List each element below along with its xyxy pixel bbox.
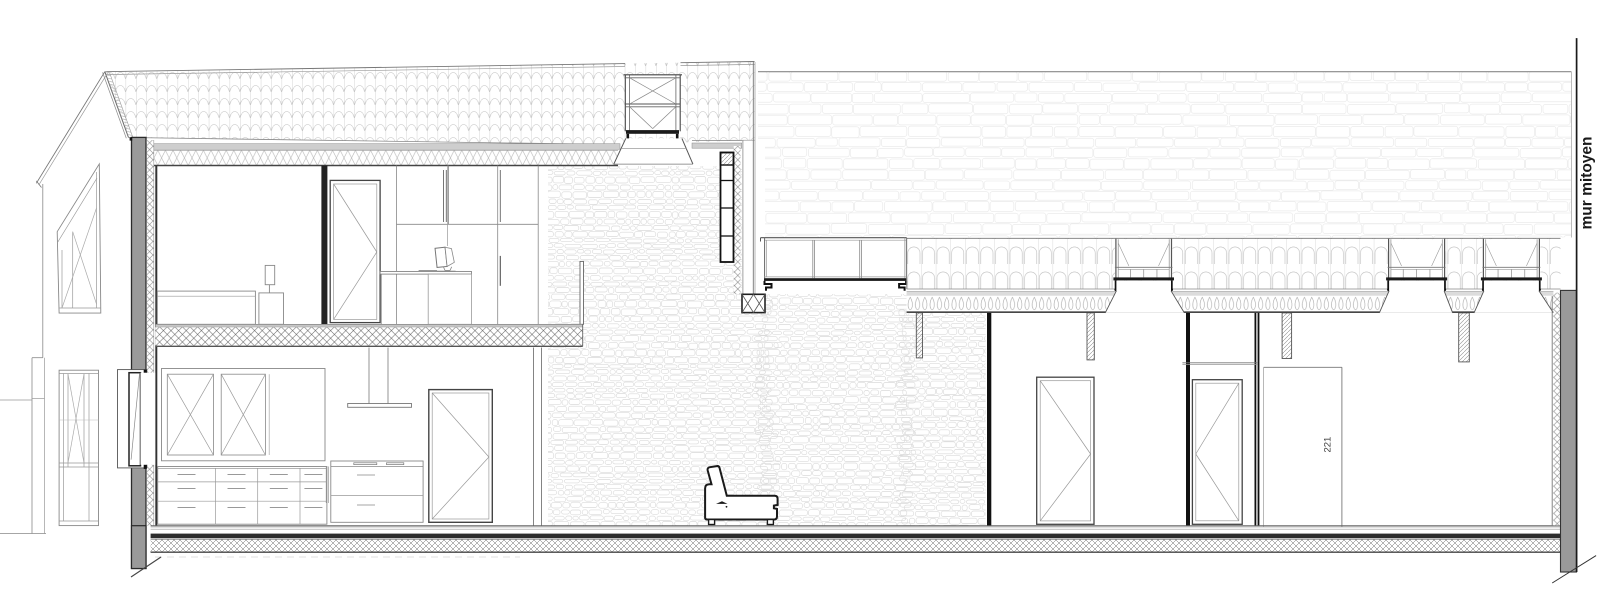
- svg-text:mur mitoyen: mur mitoyen: [1579, 136, 1596, 229]
- svg-text:221: 221: [1323, 437, 1334, 453]
